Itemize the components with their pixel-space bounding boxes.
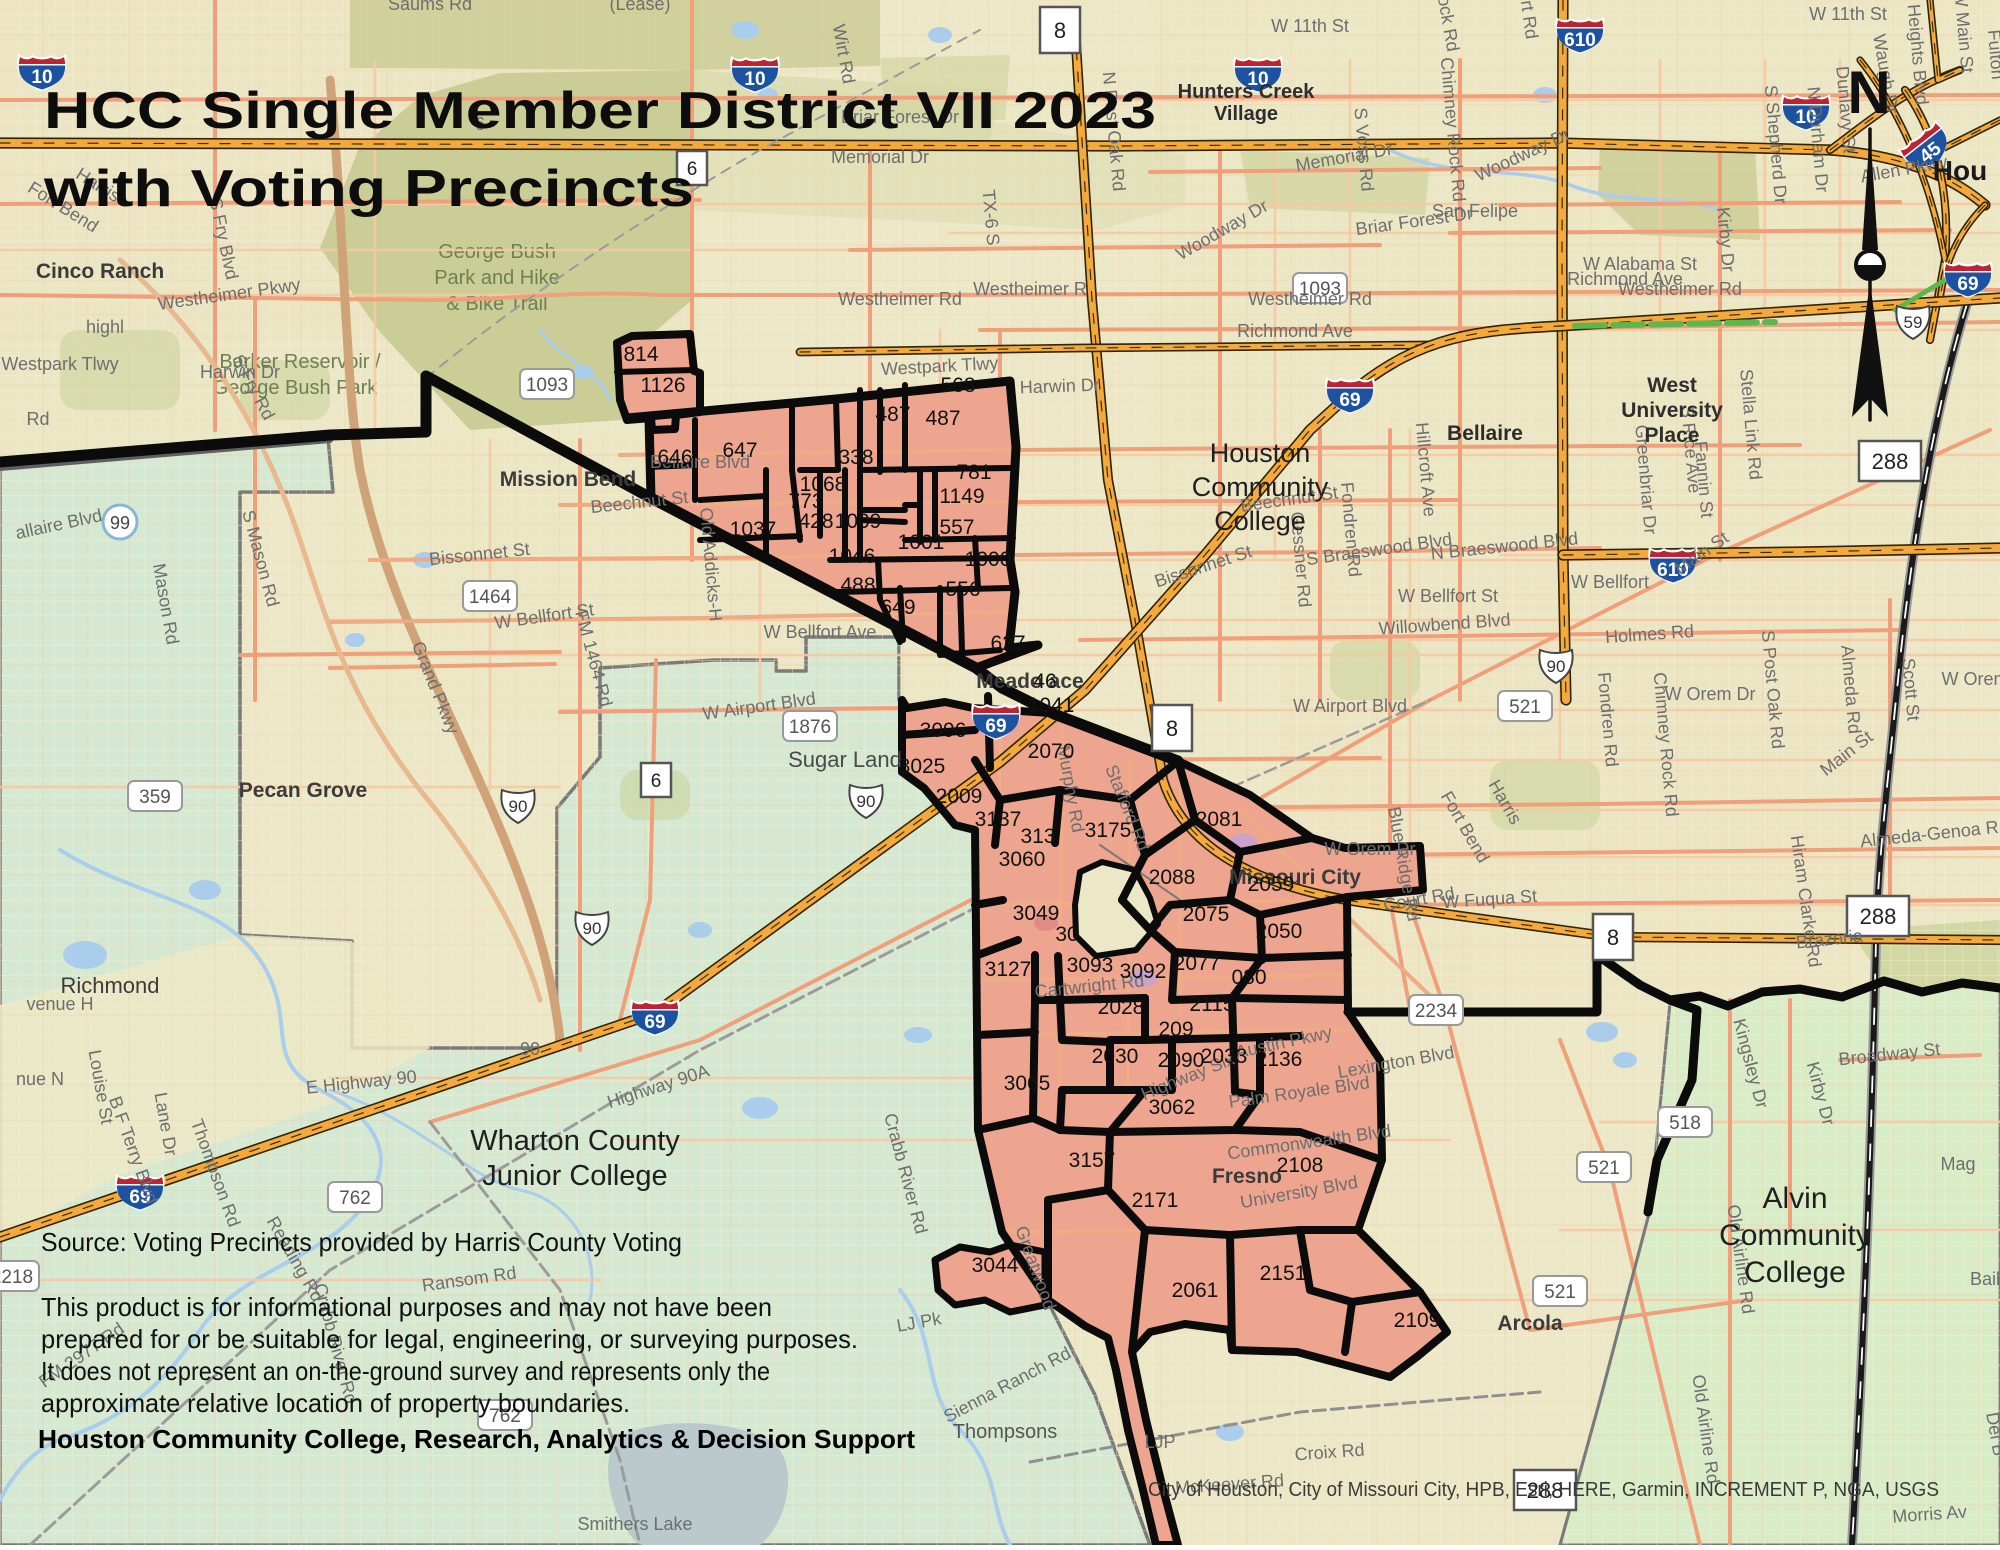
svg-text:814: 814 — [623, 343, 658, 366]
svg-text:Village: Village — [1214, 103, 1278, 125]
svg-text:3096: 3096 — [920, 719, 967, 742]
svg-text:781: 781 — [956, 461, 991, 484]
svg-text:3025: 3025 — [899, 755, 946, 778]
svg-text:610: 610 — [1564, 30, 1596, 51]
svg-text:1000: 1000 — [965, 548, 1012, 571]
svg-text:1009: 1009 — [835, 510, 882, 533]
svg-text:3093: 3093 — [1067, 954, 1114, 977]
svg-text:W Airport Blvd: W Airport Blvd — [1293, 696, 1407, 716]
svg-text:3060: 3060 — [999, 848, 1046, 871]
svg-text:3137: 3137 — [975, 808, 1022, 831]
svg-text:W 11th St: W 11th St — [1271, 16, 1349, 36]
svg-text:Harwin Dr: Harwin Dr — [1019, 375, 1100, 398]
svg-text:Richmond Ave: Richmond Ave — [1237, 321, 1353, 341]
svg-text:209: 209 — [1158, 1018, 1193, 1041]
svg-text:prepared for or be suitable fo: prepared for or be suitable for legal, e… — [41, 1324, 858, 1354]
svg-text:College: College — [1214, 506, 1306, 536]
svg-text:3065: 3065 — [1004, 1072, 1051, 1095]
svg-text:90: 90 — [1547, 657, 1566, 676]
svg-text:Bellaire: Bellaire — [1447, 422, 1523, 445]
svg-text:N: N — [1847, 59, 1890, 126]
svg-text:2081: 2081 — [1196, 808, 1243, 831]
svg-text:Pecan Grove: Pecan Grove — [239, 779, 367, 802]
svg-text:Sugar Land: Sugar Land — [788, 747, 902, 772]
svg-text:59: 59 — [1904, 313, 1923, 332]
svg-text:6: 6 — [651, 771, 662, 792]
svg-text:Arcola: Arcola — [1497, 1312, 1563, 1335]
svg-text:8: 8 — [1607, 925, 1619, 950]
svg-text:521: 521 — [1544, 1282, 1576, 1303]
svg-text:Community: Community — [1192, 472, 1329, 502]
svg-text:2028: 2028 — [1098, 996, 1145, 1019]
svg-text:2070: 2070 — [1028, 740, 1075, 763]
svg-text:Houston Community College, Res: Houston Community College, Research, Ana… — [38, 1424, 915, 1454]
svg-text:approximate relative location: approximate relative location of propert… — [41, 1388, 630, 1418]
svg-text:2171: 2171 — [1132, 1189, 1179, 1212]
svg-text:90: 90 — [583, 919, 602, 938]
svg-text:nue N: nue N — [16, 1069, 64, 1089]
svg-text:3092: 3092 — [1120, 960, 1167, 983]
svg-text:2050: 2050 — [1256, 920, 1303, 943]
svg-text:Saums Rd: Saums Rd — [388, 0, 472, 14]
svg-text:W Orem Dr: W Orem Dr — [1325, 839, 1416, 859]
svg-text:2109: 2109 — [1394, 1309, 1441, 1332]
svg-text:Westheimer Rd: Westheimer Rd — [838, 289, 962, 309]
svg-text:8: 8 — [1054, 18, 1066, 43]
svg-text:2234: 2234 — [1415, 1001, 1458, 1022]
svg-text:518: 518 — [1669, 1113, 1701, 1134]
svg-text:Westheimer Rd: Westheimer Rd — [1248, 289, 1372, 309]
svg-text:2151: 2151 — [1260, 1262, 1307, 1285]
svg-text:University: University — [1621, 399, 1723, 422]
svg-text:2136: 2136 — [1256, 1048, 1303, 1071]
svg-text:Junior College: Junior College — [482, 1160, 667, 1192]
svg-text:487: 487 — [875, 403, 910, 426]
svg-text:Westheimer Rd: Westheimer Rd — [1618, 279, 1742, 299]
svg-text:West: West — [1647, 374, 1697, 397]
svg-text:City of Houston, City of Misso: City of Houston, City of Missouri City, … — [1148, 1479, 1939, 1501]
svg-text:2061: 2061 — [1172, 1279, 1219, 1302]
svg-text:080: 080 — [1231, 966, 1266, 989]
svg-text:Memorial Dr: Memorial Dr — [831, 147, 929, 167]
svg-text:W Bellfort: W Bellfort — [1571, 572, 1649, 592]
svg-text:3175: 3175 — [1085, 819, 1132, 842]
svg-text:Wharton County: Wharton County — [470, 1125, 680, 1157]
svg-text:Thompsons: Thompsons — [953, 1421, 1058, 1443]
svg-text:It does not represent an on-th: It does not represent an on-the-ground s… — [41, 1356, 770, 1386]
svg-text:LJP: LJP — [1144, 1432, 1175, 1452]
svg-text:288: 288 — [1860, 904, 1897, 929]
svg-text:288: 288 — [1872, 449, 1909, 474]
svg-text:90: 90 — [520, 1039, 540, 1059]
svg-text:568: 568 — [940, 374, 975, 397]
svg-text:46: 46 — [1033, 670, 1056, 693]
svg-text:with Voting Precincts: with Voting Precincts — [43, 160, 694, 218]
svg-text:Rd: Rd — [26, 409, 49, 429]
svg-text:1046: 1046 — [829, 545, 876, 568]
svg-text:1001: 1001 — [898, 531, 945, 554]
svg-text:W Bellfort St: W Bellfort St — [1398, 586, 1498, 606]
svg-text:2088: 2088 — [1149, 866, 1196, 889]
svg-text:Harwin Dr: Harwin Dr — [200, 362, 280, 382]
svg-text:69: 69 — [985, 716, 1006, 737]
svg-text:2108: 2108 — [1277, 1154, 1324, 1177]
svg-text:428: 428 — [798, 510, 833, 533]
svg-text:556: 556 — [945, 578, 980, 601]
svg-text:1093: 1093 — [526, 375, 568, 396]
svg-text:2030: 2030 — [1092, 1045, 1139, 1068]
svg-text:2090: 2090 — [1158, 1049, 1205, 1072]
svg-text:Houston: Houston — [1210, 438, 1311, 468]
svg-text:W Alabama St: W Alabama St — [1583, 254, 1697, 274]
svg-text:521: 521 — [1588, 1158, 1620, 1179]
svg-text:99: 99 — [110, 513, 130, 533]
svg-text:1126: 1126 — [640, 374, 685, 397]
svg-text:627: 627 — [990, 632, 1025, 655]
svg-text:1464: 1464 — [469, 587, 512, 608]
svg-text:Westheimer R: Westheimer R — [973, 279, 1087, 299]
svg-text:College: College — [1744, 1256, 1846, 1289]
svg-text:3049: 3049 — [1013, 902, 1060, 925]
svg-text:This product is for informatio: This product is for informational purpos… — [41, 1292, 772, 1322]
svg-text:George Bush: George Bush — [438, 241, 556, 263]
svg-text:2075: 2075 — [1183, 903, 1230, 926]
svg-text:HCC Single Member District VII: HCC Single Member District VII 2023 — [44, 82, 1156, 140]
svg-text:highl: highl — [86, 317, 124, 337]
svg-text:649: 649 — [880, 596, 915, 619]
svg-text:Park and Hike: Park and Hike — [434, 267, 560, 289]
svg-text:1149: 1149 — [939, 485, 984, 508]
svg-text:Cinco Ranch: Cinco Ranch — [36, 260, 164, 283]
svg-text:8: 8 — [1166, 716, 1178, 741]
svg-text:2218: 2218 — [0, 1267, 33, 1288]
svg-text:647: 647 — [722, 439, 757, 462]
svg-text:W Orem: W Orem — [1942, 669, 2000, 689]
svg-text:313: 313 — [1020, 825, 1055, 848]
svg-text:488: 488 — [840, 574, 875, 597]
svg-text:Richmond: Richmond — [60, 973, 159, 998]
svg-text:W 11th St: W 11th St — [1809, 4, 1887, 24]
svg-text:2033: 2033 — [1201, 1045, 1248, 1068]
svg-text:1037: 1037 — [730, 518, 777, 541]
svg-text:Mag: Mag — [1940, 1154, 1975, 1174]
svg-text:3127: 3127 — [985, 958, 1032, 981]
svg-text:Smithers Lake: Smithers Lake — [577, 1514, 692, 1534]
svg-text:2059: 2059 — [1248, 873, 1295, 896]
svg-text:Meado ace: Meado ace — [976, 670, 1083, 693]
svg-text:Community: Community — [1719, 1219, 1871, 1252]
svg-text:69: 69 — [1339, 390, 1360, 411]
svg-text:762: 762 — [339, 1188, 371, 1209]
svg-text:338: 338 — [838, 446, 873, 469]
svg-text:Fresno: Fresno — [1212, 1165, 1282, 1188]
svg-text:Bail: Bail — [1970, 1269, 2000, 1289]
svg-text:69: 69 — [644, 1012, 665, 1033]
svg-text:30: 30 — [1055, 923, 1078, 946]
svg-text:W Bellfort Ave: W Bellfort Ave — [764, 622, 877, 642]
svg-text:1876: 1876 — [789, 717, 831, 738]
svg-text:Source: Voting Precincts provi: Source: Voting Precincts provided by Har… — [41, 1227, 682, 1257]
svg-text:Hou: Hou — [1933, 155, 1987, 186]
svg-text:2009: 2009 — [936, 785, 983, 808]
svg-text:Mission Bend: Mission Bend — [500, 468, 637, 491]
svg-text:3157: 3157 — [1069, 1149, 1116, 1172]
svg-text:2115: 2115 — [1189, 993, 1234, 1016]
svg-text:3044: 3044 — [972, 1254, 1019, 1277]
svg-text:646: 646 — [657, 446, 692, 469]
svg-text:90: 90 — [857, 792, 876, 811]
svg-text:359: 359 — [139, 787, 171, 808]
svg-text:Alvin: Alvin — [1762, 1182, 1827, 1215]
svg-text:Hunters Creek: Hunters Creek — [1178, 81, 1316, 103]
svg-text:90: 90 — [509, 797, 528, 816]
svg-text:2077: 2077 — [1174, 952, 1221, 975]
svg-text:1041: 1041 — [1028, 694, 1075, 717]
svg-text:(Lease): (Lease) — [609, 0, 670, 14]
svg-text:3062: 3062 — [1149, 1096, 1196, 1119]
svg-text:557: 557 — [939, 516, 974, 539]
svg-text:W Orem Dr: W Orem Dr — [1665, 684, 1756, 704]
svg-text:487: 487 — [925, 407, 960, 430]
svg-text:69: 69 — [1957, 274, 1978, 295]
svg-text:Place: Place — [1645, 424, 1700, 447]
svg-text:521: 521 — [1509, 697, 1541, 718]
svg-text:Westpark Tlwy: Westpark Tlwy — [1, 354, 118, 374]
